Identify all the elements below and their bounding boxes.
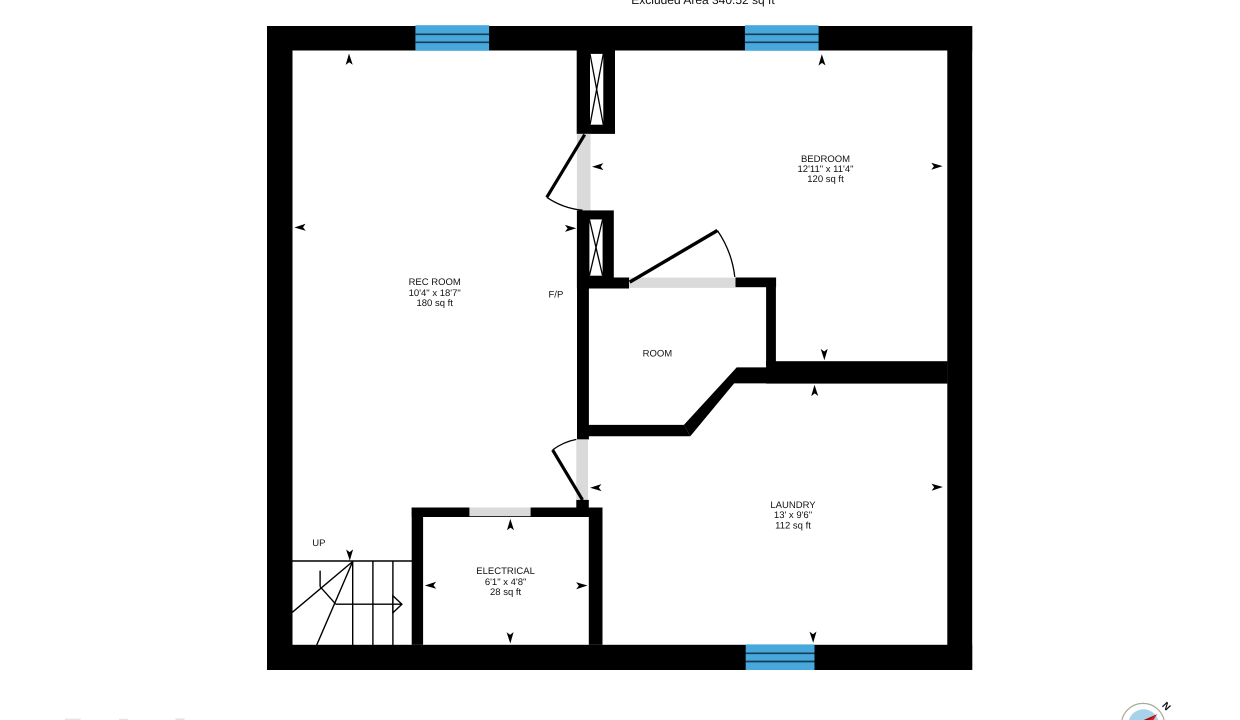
svg-text:F/P: F/P [549, 290, 564, 301]
svg-text:ELECTRICAL: ELECTRICAL [476, 566, 535, 577]
svg-text:120 sq ft: 120 sq ft [807, 174, 844, 185]
svg-text:28 sq ft: 28 sq ft [490, 587, 522, 598]
svg-text:Excluded Area 340.52 sq ft: Excluded Area 340.52 sq ft [631, 0, 775, 7]
svg-text:ROOM: ROOM [643, 349, 673, 360]
svg-text:180 sq ft: 180 sq ft [416, 298, 453, 309]
svg-text:UP: UP [312, 538, 325, 549]
svg-text:REC ROOM: REC ROOM [409, 277, 461, 288]
svg-text:112 sq ft: 112 sq ft [775, 521, 811, 532]
